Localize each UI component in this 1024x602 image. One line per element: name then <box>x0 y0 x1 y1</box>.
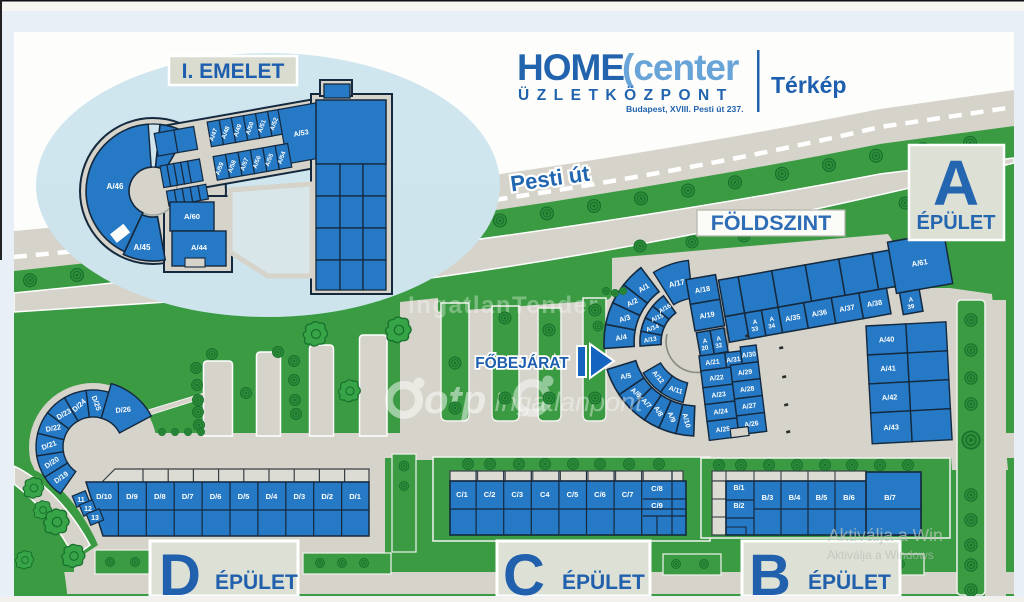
svg-text:C/3: C/3 <box>511 490 523 499</box>
svg-text:Térkép: Térkép <box>771 72 846 98</box>
svg-text:D/7: D/7 <box>182 492 194 501</box>
svg-text:C/7: C/7 <box>622 490 634 499</box>
svg-text:B/1: B/1 <box>734 485 745 492</box>
svg-text:A/45: A/45 <box>134 243 151 252</box>
svg-text:ÉPÜLET: ÉPÜLET <box>562 571 645 594</box>
svg-text:D/9: D/9 <box>126 492 138 501</box>
svg-text:B/6: B/6 <box>843 493 855 502</box>
svg-text:D/26: D/26 <box>115 405 131 415</box>
svg-text:HOME: HOME <box>517 47 624 88</box>
svg-text:11: 11 <box>77 497 85 504</box>
svg-text:12: 12 <box>84 506 92 513</box>
svg-text:Aktiválja a Win: Aktiválja a Win <box>828 525 943 545</box>
svg-text:C: C <box>503 543 545 602</box>
svg-text:ÉPÜLET: ÉPÜLET <box>917 211 996 234</box>
svg-text:C/8: C/8 <box>651 484 663 493</box>
svg-text:A/43: A/43 <box>883 422 899 432</box>
svg-text:C/2: C/2 <box>484 490 496 499</box>
svg-text:B: B <box>749 543 791 602</box>
svg-text:D: D <box>159 543 201 602</box>
svg-text:B/3: B/3 <box>762 493 774 502</box>
svg-text:ÜZLETKÖZPONT: ÜZLETKÖZPONT <box>518 87 734 104</box>
svg-text:A/60: A/60 <box>184 212 200 221</box>
svg-text:A/42: A/42 <box>882 392 898 402</box>
svg-text:C/6: C/6 <box>594 490 606 499</box>
svg-text:A/44: A/44 <box>191 243 208 252</box>
svg-text:D/10: D/10 <box>96 492 112 501</box>
svg-text:D/3: D/3 <box>293 492 305 501</box>
svg-text:B/2: B/2 <box>734 503 745 510</box>
svg-text:Budapest, XVIII. Pesti út 237.: Budapest, XVIII. Pesti út 237. <box>626 104 743 114</box>
svg-text:FÖLDSZINT: FÖLDSZINT <box>711 210 832 235</box>
svg-text:C4: C4 <box>540 490 550 499</box>
svg-text:C/5: C/5 <box>567 490 579 499</box>
svg-text:ÉPÜLET: ÉPÜLET <box>215 571 298 594</box>
svg-text:D/1: D/1 <box>349 492 361 501</box>
svg-text:C/9: C/9 <box>651 501 663 510</box>
svg-text:otp: otp <box>424 378 486 422</box>
svg-text:A: A <box>933 147 979 219</box>
svg-text:D/5: D/5 <box>238 492 250 501</box>
svg-text:D/4: D/4 <box>266 492 279 501</box>
svg-text:A/41: A/41 <box>880 363 896 373</box>
svg-text:C/1: C/1 <box>456 490 468 499</box>
svg-text:D/6: D/6 <box>210 492 222 501</box>
svg-text:D/2: D/2 <box>321 492 333 501</box>
svg-text:B/4: B/4 <box>789 493 802 502</box>
svg-text:A/40: A/40 <box>879 335 895 345</box>
svg-text:13: 13 <box>91 515 99 522</box>
svg-text:D/8: D/8 <box>154 492 166 501</box>
svg-text:B/5: B/5 <box>816 493 828 502</box>
svg-text:B/7: B/7 <box>884 493 896 502</box>
svg-text:Aktiválja a Windows: Aktiválja a Windows <box>827 548 934 562</box>
svg-text:A/46: A/46 <box>107 182 124 191</box>
svg-text:ÉPÜLET: ÉPÜLET <box>808 571 891 594</box>
svg-text:(center: (center <box>622 47 739 88</box>
svg-text:I. EMELET: I. EMELET <box>182 60 285 83</box>
svg-text:FŐBEJÁRAT: FŐBEJÁRAT <box>475 354 569 372</box>
